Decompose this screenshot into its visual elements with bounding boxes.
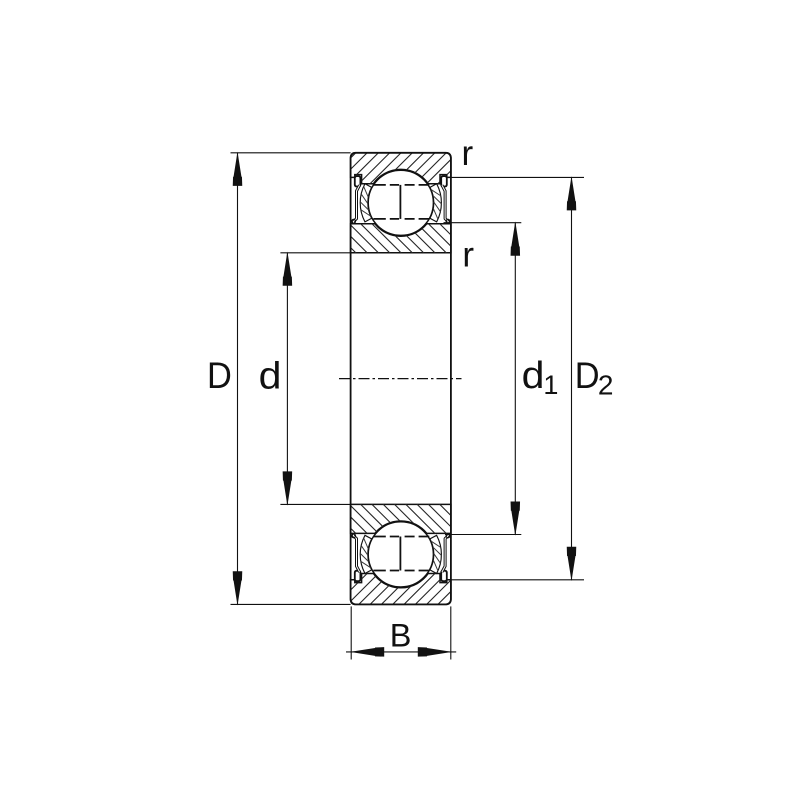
svg-text:d: d — [259, 355, 282, 397]
svg-text:d: d — [522, 354, 545, 396]
svg-text:2: 2 — [598, 370, 614, 401]
svg-text:B: B — [390, 617, 412, 653]
svg-text:D: D — [575, 355, 600, 396]
svg-text:1: 1 — [543, 370, 558, 400]
svg-text:r: r — [462, 235, 474, 274]
svg-text:D: D — [207, 355, 232, 396]
svg-text:r: r — [462, 134, 474, 173]
